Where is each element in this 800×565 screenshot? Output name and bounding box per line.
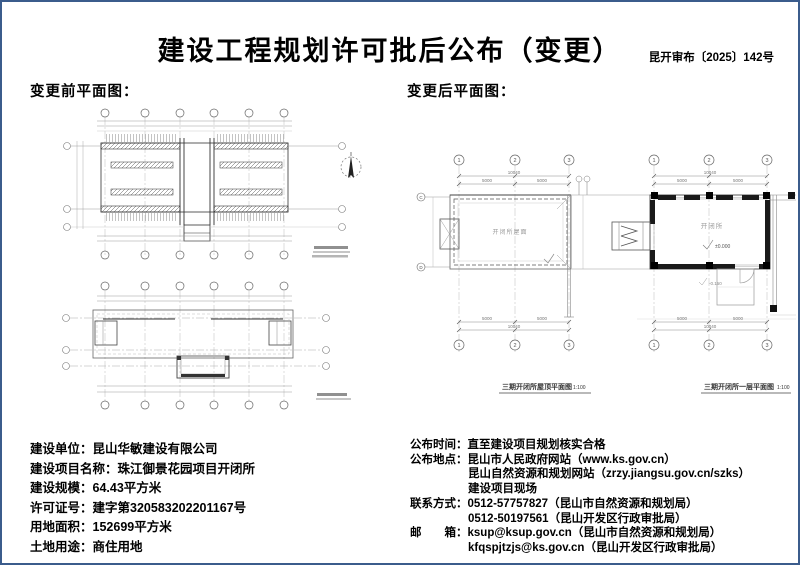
svg-text:5000: 5000 <box>537 316 548 321</box>
svg-text:2: 2 <box>513 343 516 349</box>
after-floor-plan-caption: 三期开闭所一层平面图 <box>704 382 774 391</box>
svg-text:2: 2 <box>707 158 710 164</box>
svg-text:2: 2 <box>513 158 516 164</box>
info-line-publish-place: 公布地点：昆山市人民政府网站（www.ks.gov.cn） <box>410 453 750 468</box>
before-roof-plan-linework <box>63 282 330 409</box>
info-line-land-use: 土地用途：商住用地 <box>30 538 255 558</box>
svg-text:3: 3 <box>567 158 570 164</box>
before-plan-label: 变更前平面图： <box>30 80 139 101</box>
svg-text:3: 3 <box>765 158 768 164</box>
doc-number: 昆开审布〔2025〕142号 <box>649 49 774 65</box>
svg-text:5000: 5000 <box>482 178 493 183</box>
svg-text:10040: 10040 <box>704 170 717 175</box>
svg-text:5000: 5000 <box>677 316 688 321</box>
svg-text:5000: 5000 <box>482 316 493 321</box>
publication-info-block: 公布时间：直至建设项目规划核实合格 公布地点：昆山市人民政府网站（www.ks.… <box>410 438 750 556</box>
before-roof-plan-caption <box>316 393 351 399</box>
after-plan-drawing: 1 2 3 1 2 3 10040 5000 5000 <box>407 112 797 402</box>
svg-text:5000: 5000 <box>677 178 688 183</box>
svg-text:3: 3 <box>567 343 570 349</box>
after-floor-plan: 1 2 3 1 2 3 10040 5000 5000 <box>572 155 796 393</box>
before-upper-plan-caption <box>312 246 350 258</box>
after-floor-plan-scale: 1:100 <box>777 385 790 391</box>
floor-room-label: 开闭所 <box>701 221 724 230</box>
info-line-scale: 建设规模：64.43平方米 <box>30 479 255 499</box>
info-line-publish-place-3: 建设项目现场 <box>410 482 750 497</box>
after-roof-plan-scale: 1:100 <box>573 385 586 391</box>
before-plan-drawing <box>57 105 397 437</box>
info-line-email-2: kfqspjtzjs@ks.gov.cn（昆山开发区行政审批局） <box>410 541 750 556</box>
info-line-contact: 联系方式：0512-57757827（昆山市自然资源和规划局） <box>410 497 750 512</box>
svg-text:5000: 5000 <box>733 316 744 321</box>
outdoor-level-label: -0.150 <box>709 281 722 286</box>
info-line-publish-place-2: 昆山自然资源和规划网站（zrzy.jiangsu.gov.cn/szks） <box>410 467 750 482</box>
info-line-project-name: 建设项目名称：珠江御景花园项目开闭所 <box>30 460 255 480</box>
svg-text:5000: 5000 <box>733 178 744 183</box>
svg-text:10040: 10040 <box>508 170 521 175</box>
info-line-publish-time: 公布时间：直至建设项目规划核实合格 <box>410 438 750 453</box>
svg-text:1: 1 <box>652 343 655 349</box>
svg-text:1: 1 <box>457 158 460 164</box>
info-line-email: 邮 箱：ksup@ksup.gov.cn（昆山市自然资源和规划局） <box>410 526 750 541</box>
info-line-unit: 建设单位：昆山华敏建设有限公司 <box>30 440 255 460</box>
svg-text:1: 1 <box>457 343 460 349</box>
notice-page: 建设工程规划许可批后公布（变更） 昆开审布〔2025〕142号 变更前平面图： … <box>0 0 800 565</box>
info-line-permit-no: 许可证号：建字第320583202201167号 <box>30 499 255 519</box>
after-plan-label: 变更后平面图： <box>407 80 516 101</box>
after-roof-plan-caption: 三期开闭所屋顶平面图 <box>502 382 572 391</box>
info-line-land-area: 用地面积：152699平方米 <box>30 518 255 538</box>
roof-room-label: 开闭所屋面 <box>492 228 527 236</box>
north-arrow-icon <box>341 152 361 178</box>
svg-text:2: 2 <box>707 343 710 349</box>
svg-text:10040: 10040 <box>704 324 717 329</box>
floor-level-label: ±0.000 <box>715 244 730 250</box>
after-roof-plan: 1 2 3 1 2 3 10040 5000 5000 <box>417 155 591 393</box>
svg-text:10040: 10040 <box>508 324 521 329</box>
svg-text:3: 3 <box>765 343 768 349</box>
svg-text:5000: 5000 <box>537 178 548 183</box>
before-upper-plan-linework <box>64 109 346 259</box>
project-info-block: 建设单位：昆山华敏建设有限公司 建设项目名称：珠江御景花园项目开闭所 建设规模：… <box>30 440 255 558</box>
info-line-contact-2: 0512-50197561（昆山开发区行政审批局） <box>410 512 750 527</box>
svg-text:1: 1 <box>652 158 655 164</box>
